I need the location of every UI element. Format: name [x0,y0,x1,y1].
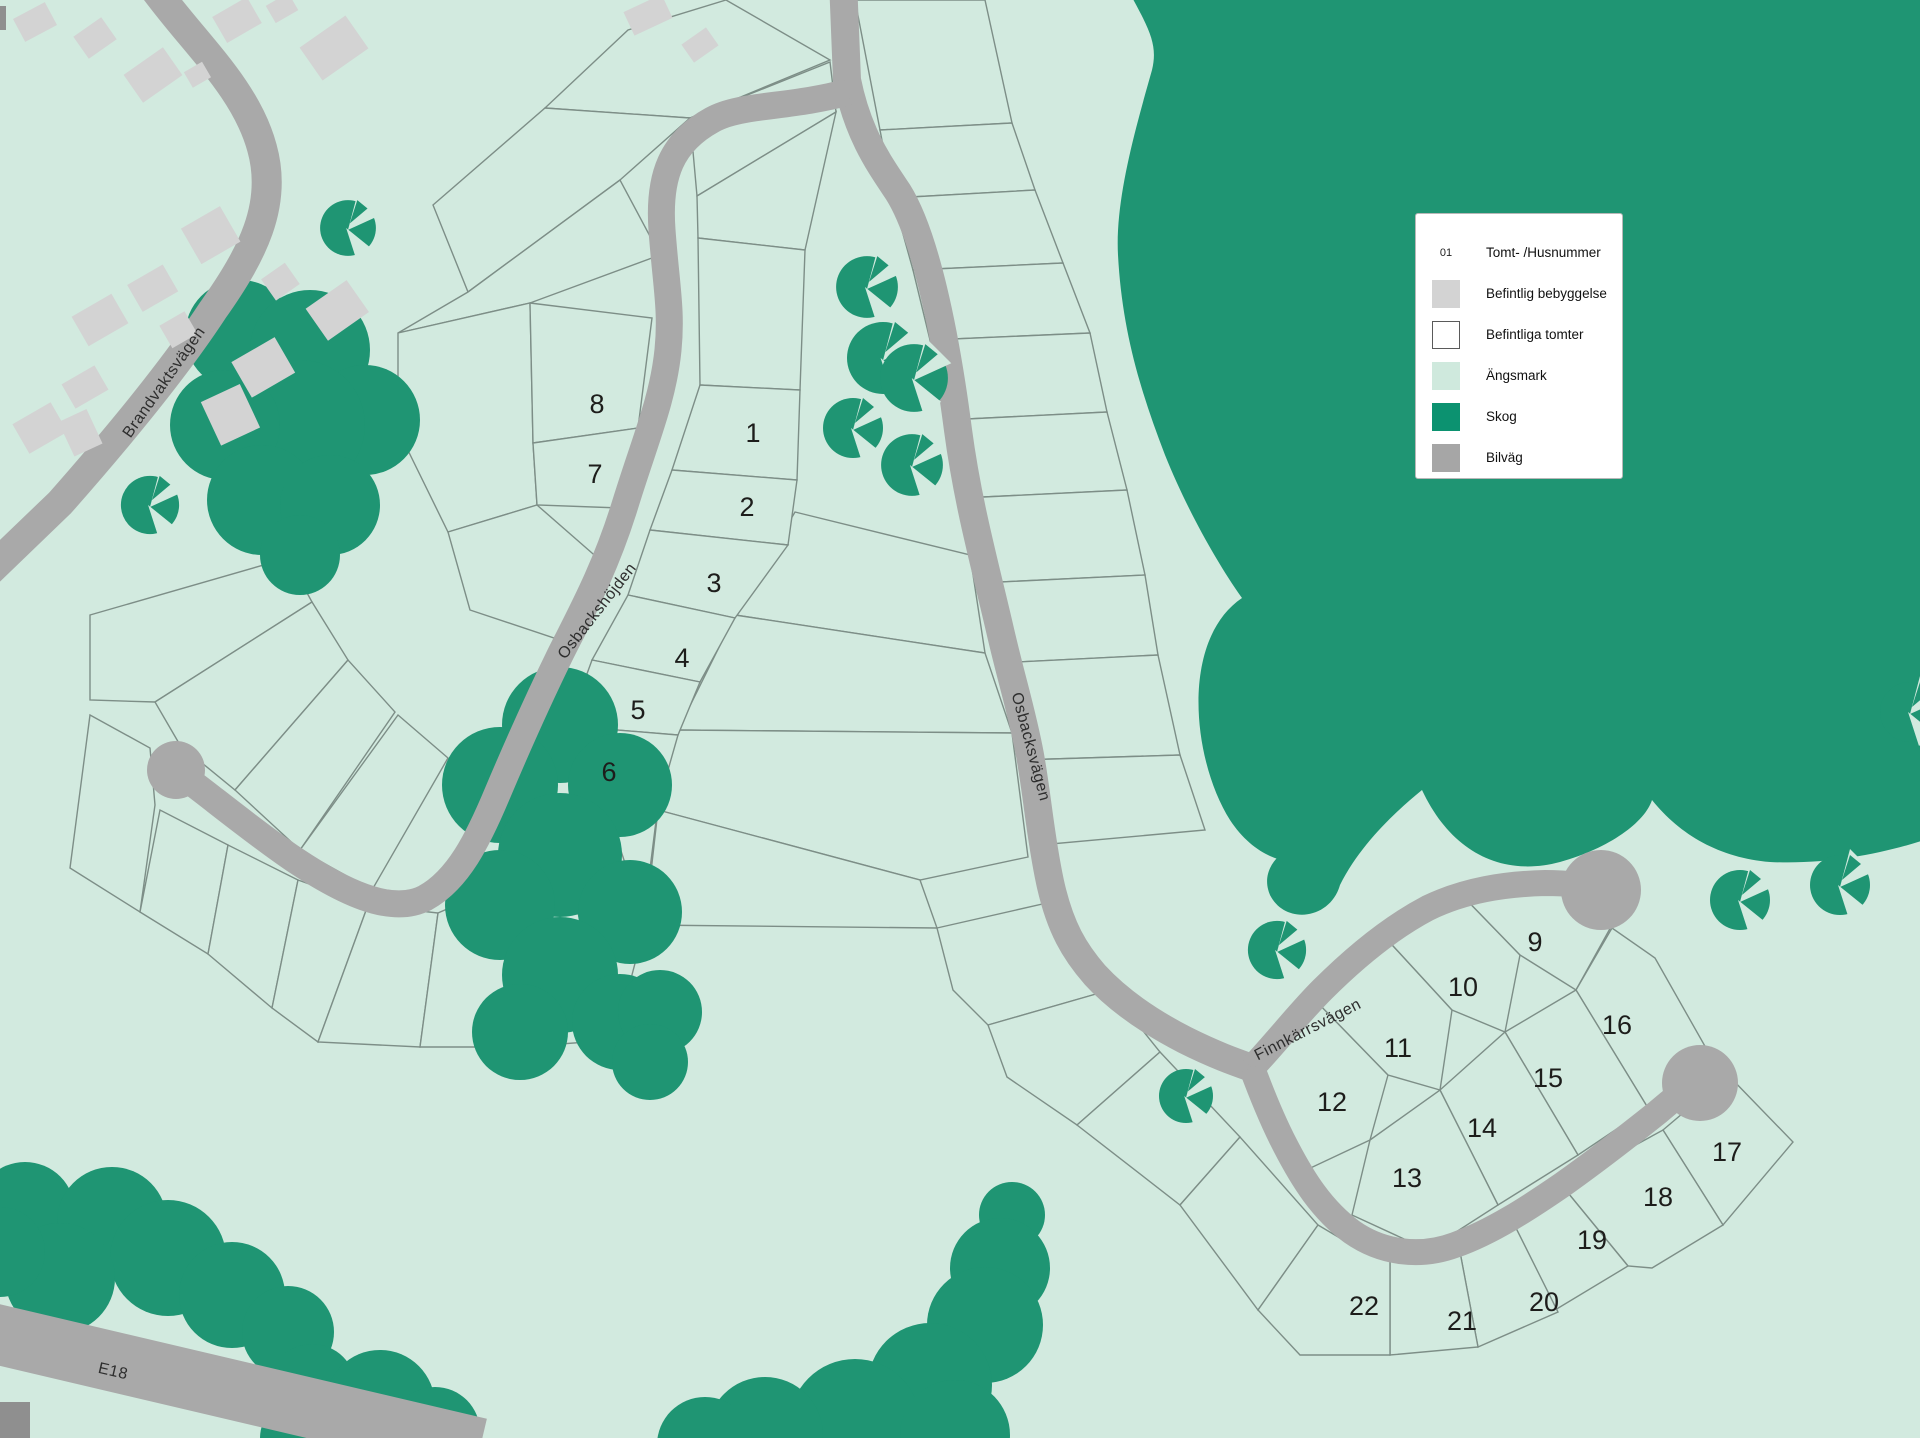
legend-label: Skog [1486,409,1517,424]
plot-number-14: 14 [1467,1113,1497,1143]
forest-swatch [1432,403,1460,431]
plot-number-7: 7 [587,459,602,489]
legend-label: Befintliga tomter [1486,327,1584,342]
plot-number-21: 21 [1447,1306,1477,1336]
plot-number-10: 10 [1448,972,1478,1002]
existing-building-swatch [1432,280,1460,308]
plot-number-18: 18 [1643,1182,1673,1212]
legend-label: Bilväg [1486,450,1523,465]
meadow-swatch [1432,362,1460,390]
legend-row-road: Bilväg [1432,437,1622,478]
plot-number-19: 19 [1577,1225,1607,1255]
legend-label: Tomt- /Husnummer [1486,245,1601,260]
legend-label: Ängsmark [1486,368,1547,383]
legend-label: Befintlig bebyggelse [1486,286,1607,301]
plot-number-12: 12 [1317,1087,1347,1117]
legend-number-sample: 01 [1432,247,1460,259]
map-legend: 01 Tomt- /Husnummer Befintlig bebyggelse… [1415,213,1623,479]
legend-row-existing-building: Befintlig bebyggelse [1432,273,1622,314]
road-swatch [1432,444,1460,472]
legend-row-existing-plots: Befintliga tomter [1432,314,1622,355]
legend-row-number: 01 Tomt- /Husnummer [1432,232,1622,273]
existing-plots-swatch [1432,321,1460,349]
plot-number-22: 22 [1349,1291,1379,1321]
legend-row-forest: Skog [1432,396,1622,437]
legend-row-meadow: Ängsmark [1432,355,1622,396]
cul-de-sac-finnkarrsvagen-north [1561,850,1641,930]
plot-number-15: 15 [1533,1063,1563,1093]
plot-number-2: 2 [739,492,754,522]
plot-number-4: 4 [674,643,689,673]
plot-number-6: 6 [601,757,616,787]
site-plan-map: 1 2 3 4 5 6 7 8 9 10 11 12 13 14 15 16 1… [0,0,1920,1438]
cul-de-sac-finnkarrsvagen-east [1662,1045,1738,1121]
cul-de-sac-osbackshojden [147,741,205,799]
plot-number-11: 11 [1384,1033,1412,1063]
map-corner-mark-top [0,6,6,30]
plot-number-9: 9 [1527,927,1542,957]
plot-number-20: 20 [1529,1287,1559,1317]
plot-number-5: 5 [630,695,645,725]
map-canvas: 1 2 3 4 5 6 7 8 9 10 11 12 13 14 15 16 1… [0,0,1920,1438]
map-corner-mark [0,1402,30,1438]
plot-number-8: 8 [589,389,604,419]
plot-number-17: 17 [1712,1137,1742,1167]
plot-number-3: 3 [706,568,721,598]
plot-number-13: 13 [1392,1163,1422,1193]
plot-number-1: 1 [745,418,760,448]
plot-number-16: 16 [1602,1010,1632,1040]
